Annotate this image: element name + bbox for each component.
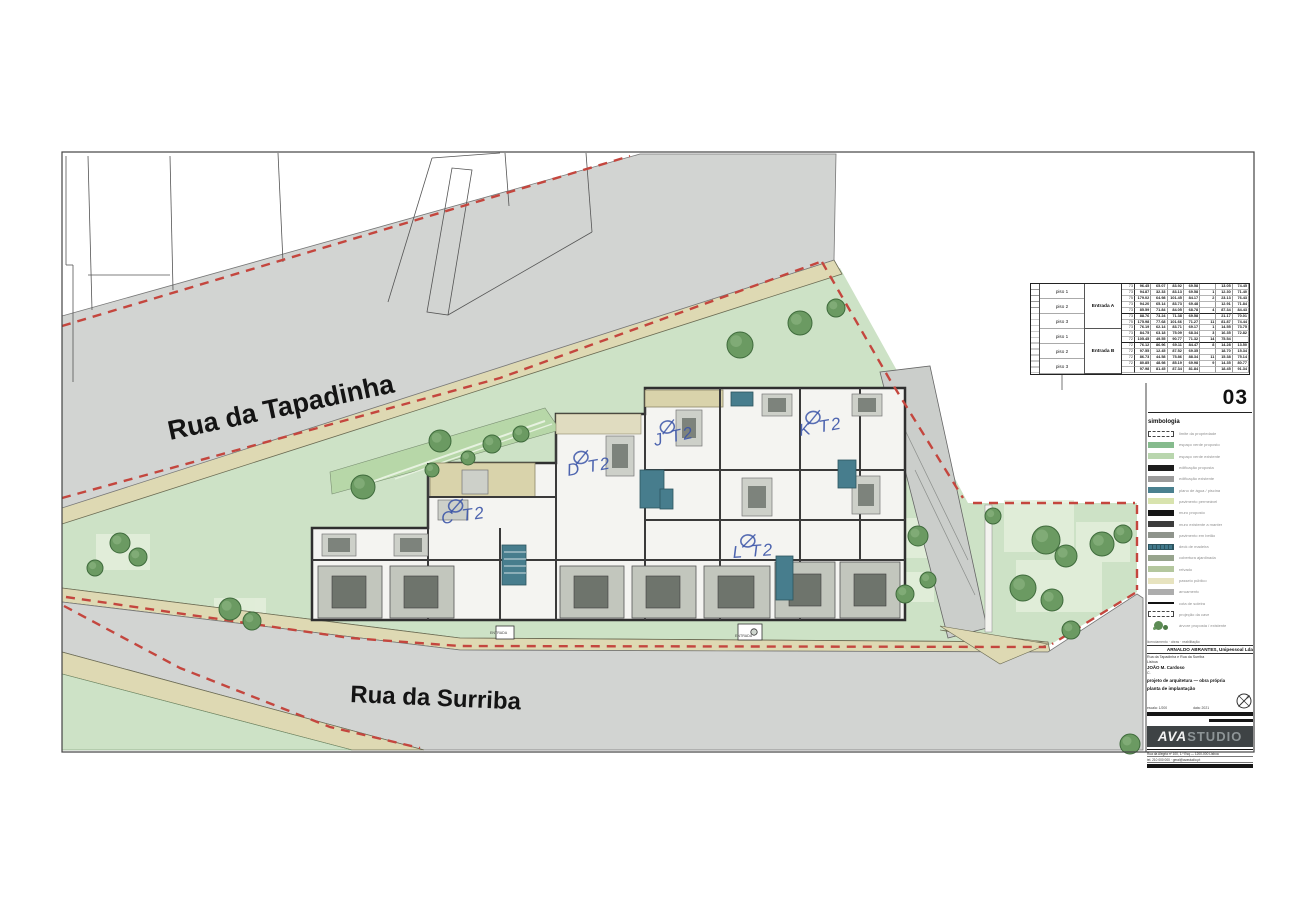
tree-highlight	[922, 574, 929, 581]
legend-item-label: pavimento permeável	[1179, 499, 1217, 504]
legend-swatch-icon	[1148, 431, 1174, 437]
legend-item-label: relvado	[1179, 567, 1192, 572]
legend-item: plano de água / piscina	[1148, 484, 1252, 495]
legend-swatch-icon	[1148, 589, 1174, 595]
tree-highlight	[987, 510, 994, 517]
legend-swatch-icon	[1148, 602, 1174, 604]
footer-contacts: tel. 210 000 000 · geral@avastudio.pt	[1147, 757, 1253, 763]
titleblock-footer: Rua da Alegria nº 100, 1.º Esq — 1200-00…	[1147, 749, 1253, 763]
legend-item-label: arruamento	[1179, 589, 1199, 594]
floor-label: piso 1	[1040, 284, 1084, 299]
drawing-sheet: Rua da Tapadinha Rua da Surriba ENTRADA …	[0, 0, 1293, 914]
tree-highlight	[791, 314, 802, 325]
area-value-cell: 81.84	[1184, 367, 1200, 373]
legend-item-label: muro existente a manter	[1179, 522, 1222, 527]
north-compass-icon	[1235, 692, 1253, 710]
legend-item-label: árvore proposta / existente	[1179, 623, 1226, 628]
scale-label: escala: 1/200	[1147, 706, 1167, 710]
legend-item-label: pavimento em betão	[1179, 533, 1215, 538]
legend-item-label: edificação existente	[1179, 476, 1214, 481]
legend-item: pavimento em betão	[1148, 530, 1252, 541]
titleblock-bar-small	[1209, 719, 1253, 722]
logo-studio: STUDIO	[1187, 729, 1242, 744]
legend-title: simbologia	[1148, 419, 1252, 425]
entrance-a-label: Entrada A	[1085, 284, 1121, 329]
entrada-label-left: ENTRADA	[490, 631, 508, 635]
legend-item-label: projeção da cave	[1179, 612, 1209, 617]
tree-highlight	[1058, 548, 1068, 558]
tree-highlight	[898, 587, 906, 595]
legend-item: espaço verde existente	[1148, 451, 1252, 462]
areas-table: piso 1 piso 2 piso 3 piso 1 piso 2 piso …	[1030, 283, 1250, 375]
legend-item: edificação proposta	[1148, 462, 1252, 473]
table-values-grid: 7396.4565.0783.9269.5813.0574.457394.873…	[1122, 284, 1249, 374]
legend-swatch-icon	[1148, 442, 1174, 448]
legend-item: limite da propriedade	[1148, 428, 1252, 439]
legend-item: edificação existente	[1148, 473, 1252, 484]
titleblock-bar	[1147, 712, 1253, 716]
floor-label: piso 2	[1040, 299, 1084, 314]
site-plan-canvas: Rua da Tapadinha Rua da Surriba ENTRADA …	[0, 0, 1293, 914]
tree-highlight	[131, 550, 139, 558]
legend-item: relvado	[1148, 564, 1252, 575]
tree-highlight	[730, 335, 742, 347]
legend-item: muro existente a manter	[1148, 518, 1252, 529]
tree-highlight	[432, 433, 442, 443]
legend-item-label: espaço verde existente	[1179, 454, 1220, 459]
logo-ava: AVA	[1158, 729, 1188, 744]
tree-highlight	[89, 562, 96, 569]
legend-swatch-icon	[1148, 555, 1174, 561]
legend-swatch-icon	[1148, 623, 1174, 629]
title-block: licenciamento · obras · reabilitação ARN…	[1147, 640, 1253, 768]
tree-highlight	[1013, 578, 1025, 590]
area-value-cell	[1200, 367, 1216, 373]
legend-item: árvore proposta / existente	[1148, 620, 1252, 631]
tree-highlight	[829, 301, 837, 309]
tree-highlight	[911, 529, 920, 538]
tree-highlight	[1044, 592, 1054, 602]
legend-swatch-icon	[1148, 566, 1174, 572]
legend-item: muro proposto	[1148, 507, 1252, 518]
legend-item-label: passeio público	[1179, 578, 1207, 583]
legend-swatch-icon	[1148, 532, 1174, 538]
floor-label: piso 2	[1040, 344, 1084, 359]
legend-swatch-icon	[1148, 498, 1174, 504]
floor-label: piso 1	[1040, 329, 1084, 344]
legend-item: cota de soleira	[1148, 597, 1252, 608]
table-index-column	[1031, 284, 1040, 374]
table-entrance-labels: Entrada A Entrada B	[1085, 284, 1122, 374]
tree-highlight	[245, 614, 253, 622]
tree-highlight	[427, 465, 433, 471]
legend-swatch-icon	[1148, 476, 1174, 482]
patios	[318, 562, 900, 618]
area-value-cell: 18.45	[1216, 367, 1232, 373]
company-name: ARNALDO ABRANTES, Unipessoal Lda	[1147, 646, 1253, 654]
area-value-cell: 87.34	[1168, 367, 1184, 373]
area-value-cell	[1122, 367, 1135, 373]
legend-swatch-icon	[1148, 465, 1174, 471]
titleblock-bottom-bar	[1147, 764, 1253, 768]
area-value-cell: 97.98	[1135, 367, 1151, 373]
legend-item: pavimento permeável	[1148, 496, 1252, 507]
tree-highlight	[113, 536, 122, 545]
tree-highlight	[1036, 530, 1049, 543]
date-label: data: 2021	[1193, 706, 1209, 710]
legend-item: arruamento	[1148, 586, 1252, 597]
tree-highlight	[222, 601, 232, 611]
tree-highlight	[463, 453, 469, 459]
legend-item-label: muro proposto	[1179, 510, 1205, 515]
legend-item-label: deck de madeira	[1179, 544, 1209, 549]
legend-item-label: plano de água / piscina	[1179, 488, 1220, 493]
legend-swatch-icon	[1148, 521, 1174, 527]
sheet-number: 03	[1148, 386, 1252, 413]
tree-highlight	[1093, 535, 1104, 546]
drawing-title: planta de implantação	[1147, 683, 1253, 691]
legend-panel: 03 simbologia limite da propriedadeespaç…	[1148, 386, 1252, 631]
legend-swatch-icon	[1148, 544, 1174, 550]
legend-item: passeio público	[1148, 575, 1252, 586]
floor-label: piso 3	[1040, 314, 1084, 329]
entrance-b-label: Entrada B	[1085, 329, 1121, 374]
legend-item: espaço verde proposto	[1148, 439, 1252, 450]
floor-label: piso 3	[1040, 359, 1084, 374]
legend-item-label: espaço verde proposto	[1179, 442, 1220, 447]
legend-swatch-icon	[1148, 611, 1174, 617]
tree-highlight	[1123, 737, 1132, 746]
tree-highlight	[1116, 527, 1124, 535]
legend-item-label: cobertura ajardinada	[1179, 555, 1216, 560]
legend-item: cobertura ajardinada	[1148, 552, 1252, 563]
legend-item-label: cota de soleira	[1179, 601, 1205, 606]
legend-item: projeção da cave	[1148, 609, 1252, 620]
area-value-cell: 81.45	[1151, 367, 1167, 373]
unit-label-text: L T2	[732, 540, 775, 562]
legend-item: deck de madeira	[1148, 541, 1252, 552]
project-title: projeto de arquitetura — obra própria	[1147, 675, 1253, 683]
area-value-cell: 91.34	[1233, 367, 1249, 373]
entrada-label-right: ENTRADA	[735, 634, 753, 638]
legend-item-label: edificação proposta	[1179, 465, 1214, 470]
tree-highlight	[1064, 623, 1072, 631]
tree-highlight	[485, 437, 493, 445]
legend-swatch-icon	[1148, 453, 1174, 459]
legend-swatch-icon	[1148, 487, 1174, 493]
avastudio-logo: AVASTUDIO	[1147, 726, 1253, 747]
tree-highlight	[515, 428, 522, 435]
legend-swatch-icon	[1148, 578, 1174, 584]
legend-item-label: limite da propriedade	[1179, 431, 1216, 436]
legend-swatch-icon	[1148, 510, 1174, 516]
table-floor-labels: piso 1 piso 2 piso 3 piso 1 piso 2 piso …	[1040, 284, 1085, 374]
tree-highlight	[354, 478, 365, 489]
